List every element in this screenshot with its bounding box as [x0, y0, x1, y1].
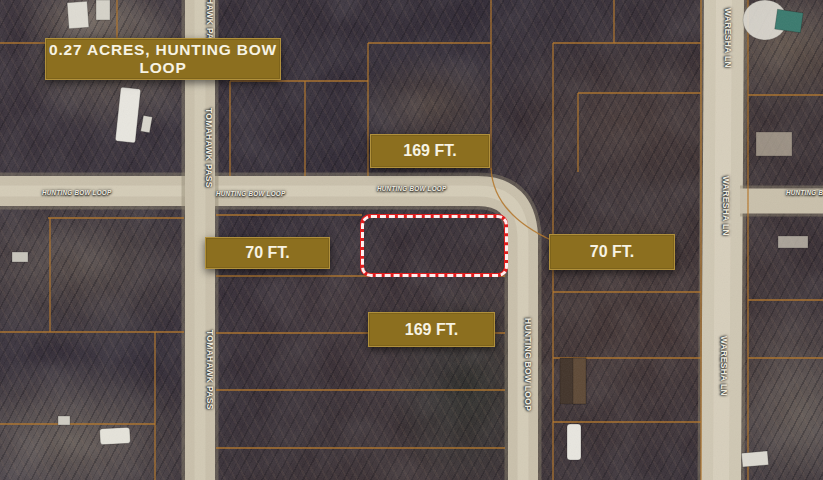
measurement-label-left: 70 FT.	[205, 237, 330, 269]
measurement-label-top: 169 FT.	[370, 134, 490, 168]
street-label-hunting-bow-loop: HUNTING BOW LOOP	[786, 189, 823, 196]
street-label-hunting-bow-loop: HUNTING BOW LOOP	[377, 185, 446, 192]
street-label-tomahawk-pass: TOMAHAWK PASS	[205, 330, 215, 410]
measurement-label-bottom: 169 FT.	[368, 312, 495, 347]
street-label-tomahawk-pass: TOMAHAWK PASS	[204, 108, 214, 188]
street-label-hunting-bow-loop: HUNTING BOW LOOP	[216, 190, 285, 197]
street-label-waresha-ln: WARESHA LN	[723, 8, 733, 68]
street-label-waresha-ln: WARESHA LN	[721, 176, 731, 236]
aerial-map-view: HUNTING BOW LOOP HUNTING BOW LOOP HUNTIN…	[0, 0, 823, 480]
property-boundary-highlight	[360, 214, 508, 277]
street-label-waresha-ln: WARESHA LN	[719, 336, 729, 396]
listing-title-badge: 0.27 ACRES, HUNTING BOW LOOP	[45, 38, 281, 80]
street-label-hunting-bow-loop: HUNTING BOW LOOP	[42, 189, 111, 196]
street-label-hunting-bow-loop-vertical: HUNTING BOW LOOP	[523, 318, 533, 411]
measurement-label-right: 70 FT.	[549, 234, 675, 270]
